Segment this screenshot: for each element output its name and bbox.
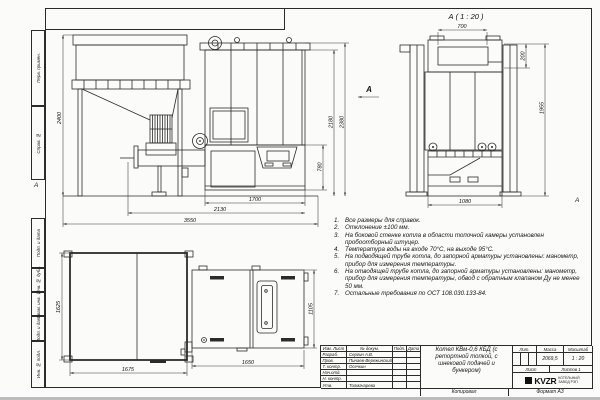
- note-item: 3.На боковой стенке котла в области топо…: [334, 232, 588, 247]
- dim-rear-base-width: 1080: [459, 199, 472, 205]
- plan-view-drawing: 1625 1675 1650 1105: [56, 251, 317, 376]
- note-number: 2.: [334, 224, 345, 231]
- note-item: 2.Отклонение ±100 мм.: [334, 224, 588, 231]
- tb-lit-label: Лит.: [513, 346, 537, 353]
- tb-mass-label: Масса: [537, 346, 564, 353]
- view-direction-label: А: [365, 85, 372, 94]
- note-number: 4.: [334, 246, 345, 253]
- rear-view-title: А ( 1 : 20 ): [447, 12, 484, 21]
- kvzr-caption-line2: ЗАВОД РЭП: [558, 381, 579, 385]
- dim-plan-boiler-width: 1650: [242, 360, 255, 366]
- note-item: 6.На отводящей трубе котла, до запорной …: [334, 268, 588, 290]
- tb-date-cell: [407, 382, 421, 389]
- tb-name: Толмачарева: [347, 382, 393, 389]
- dim-overall-height: 2380: [340, 115, 346, 129]
- note-number: 3.: [334, 232, 345, 247]
- note-item: 1.Все размеры для справок.: [334, 217, 588, 224]
- kvzr-logo-caption: КОТЕЛЬНЫЙ ЗАВОД РЭП: [558, 377, 579, 385]
- note-number: 5.: [334, 253, 345, 268]
- tb-lit-cell: [529, 353, 537, 366]
- note-item: 5.На подводящей трубе котла, до запорной…: [334, 253, 588, 268]
- tb-lit-cell: [513, 353, 521, 366]
- note-number: 7.: [334, 290, 345, 297]
- tb-role: Утв.: [321, 382, 347, 389]
- tb-mass-value: 2069,5: [537, 353, 564, 366]
- tb-document-title: Котел КВм-0,6 КБД (с ретортной топкой, с…: [421, 346, 513, 389]
- note-number: 1.: [334, 217, 345, 224]
- dim-rear-collector-height: 200: [521, 50, 527, 61]
- tb-scale-label: Масштаб: [564, 346, 593, 353]
- dim-rear-top-width: 700: [457, 24, 467, 30]
- dim-plan-bunker-width: 1675: [122, 367, 135, 373]
- tb-scale-value: 1 : 20: [564, 353, 593, 366]
- note-item: 7.Остальные требования по ОСТ 108.030.13…: [334, 290, 588, 297]
- paper-format-label: Формат А3: [508, 389, 592, 395]
- kvzr-logo-text: KVZR: [534, 376, 556, 386]
- tb-logo-cell: KVZR КОТЕЛЬНЫЙ ЗАВОД РЭП: [513, 373, 593, 389]
- dim-bunker-height: 2400: [57, 111, 63, 125]
- note-text: На подводящей трубе котла, до запорной а…: [345, 253, 588, 268]
- note-text: Отклонение ±100 мм.: [345, 224, 588, 231]
- note-number: 6.: [334, 268, 345, 290]
- drawing-sheet: Перв. примен. Справ. № Подп. и дата Инв.…: [0, 0, 600, 400]
- dim-plan-boiler-depth: 1105: [309, 302, 315, 315]
- company-logo: KVZR КОТЕЛЬНЫЙ ЗАВОД РЭП: [525, 376, 579, 386]
- note-text: На боковой стенке котла в области топочн…: [345, 232, 588, 247]
- tb-lit-cell: [521, 353, 529, 366]
- dim-feed-width: 2130: [213, 207, 227, 213]
- technical-drawing-canvas: 2400 780 2180 2380 1700 2130 3550 А А ( …: [0, 0, 600, 400]
- tb-sheet-label: Лист: [513, 366, 550, 373]
- front-view-drawing: 2400 780 2180 2380 1700 2130 3550 А: [57, 35, 379, 227]
- note-text: Все размеры для справок.: [345, 217, 588, 224]
- dim-overall-width: 3550: [184, 218, 197, 224]
- note-item: 4.Температура воды на входе 70°С, на вых…: [334, 246, 588, 253]
- note-text: Остальные требования по ОСТ 108.030.133-…: [345, 290, 588, 297]
- note-text: Температура воды на входе 70°С, на выход…: [345, 246, 588, 253]
- dim-rear-height: 1955: [540, 101, 546, 114]
- rear-view-drawing: А ( 1 : 20 ): [400, 12, 549, 208]
- title-block: Изм. Лист № докум. Подп. Дата Разраб. Се…: [320, 345, 592, 388]
- dim-inner-height: 2180: [329, 115, 335, 129]
- kvzr-logo-icon: [525, 377, 532, 384]
- tb-sheets-label: Листов 1: [550, 366, 593, 373]
- dim-plan-bunker-depth: 1625: [56, 300, 62, 313]
- copied-by-label: Копировал: [420, 389, 508, 395]
- dim-base-height: 780: [318, 161, 324, 171]
- tb-sign-cell: [393, 382, 407, 389]
- technical-notes: 1.Все размеры для справок. 2.Отклонение …: [334, 217, 588, 297]
- dim-boiler-width: 1700: [249, 197, 262, 203]
- note-text: На отводящей трубе котла, до запорной ар…: [345, 268, 588, 290]
